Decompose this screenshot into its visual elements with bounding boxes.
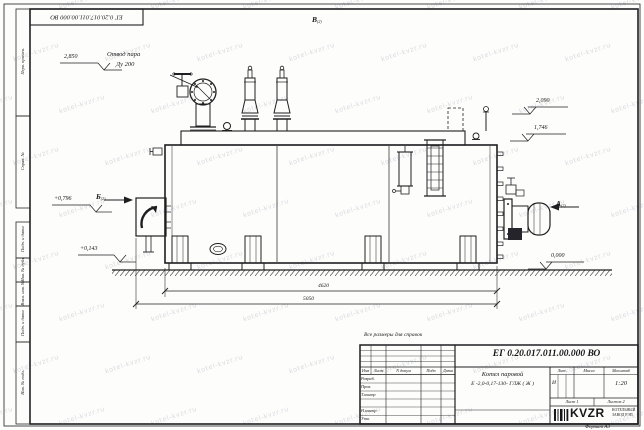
level-2850: 2,850 — [64, 54, 78, 60]
org-name-line2: ЗАВОД РЭП — [612, 414, 633, 418]
boiler-body — [165, 131, 497, 263]
margin-label-inv-podl: Инв. № подл. — [21, 342, 26, 422]
sheet-cell: Лист 1 — [550, 400, 594, 404]
view-label-a: А(2) — [556, 194, 566, 210]
col-izm: Изм — [360, 369, 371, 373]
dim-5050: 5050 — [303, 297, 314, 303]
level-1746: 1,746 — [534, 125, 548, 131]
lit-label: Лит. — [550, 369, 574, 373]
margin-label-perv-primen: Перв. примен. — [21, 21, 26, 101]
top-right-fittings — [448, 107, 489, 140]
support-feet — [169, 236, 479, 270]
col-list: Лист — [371, 369, 386, 373]
level-0143: +0,143 — [80, 246, 98, 252]
format-label: Формат А3 — [585, 425, 610, 430]
left-wall-fitting — [150, 148, 162, 155]
col-data: Дата — [441, 369, 455, 373]
steam-valve — [173, 73, 216, 130]
margin-label-sprav-no: Справ. № — [21, 121, 26, 201]
product-name-line2: Е -2,0-0,17-130- ГЛЖ ( Ж ) — [456, 382, 549, 388]
reference-note: Все размеры для справок — [364, 333, 422, 339]
safety-valves — [241, 66, 291, 131]
role-nkontr: Н.контр — [361, 409, 377, 413]
ground-line — [112, 270, 612, 276]
burner-assembly — [497, 152, 550, 259]
lifting-eye — [222, 123, 232, 131]
view-sheet-ref-b: (2) — [101, 196, 106, 201]
role-utv: Утв. — [361, 417, 370, 421]
level-0000: 0,000 — [551, 253, 565, 259]
massa-label: Масса — [574, 369, 604, 373]
sheets-cell: Листов 2 — [594, 400, 638, 404]
drawing-sheet: kotel-kvzr.rukotel-kvzr.rukotel-kvzr.ruk… — [0, 0, 644, 430]
view-label-b: Б(2) — [96, 187, 105, 203]
view-sheet-ref-a: (2) — [561, 203, 566, 208]
dim-4620: 4620 — [318, 284, 329, 290]
titleblock-doc-number: ЕГ 0.20.017.011.00.000 ВО — [455, 350, 638, 360]
role-tkontr: Т.контр — [361, 393, 376, 397]
level-2090: 2,090 — [536, 98, 550, 104]
level-0796: +0,796 — [54, 196, 72, 202]
water-level-gauges — [393, 140, 447, 196]
scale-value: 1:20 — [604, 381, 638, 388]
view-label-v: В(2) — [312, 10, 322, 26]
logo-barcode — [554, 409, 568, 421]
org-logo-text: KVZR — [570, 407, 605, 419]
role-prov: Пров. — [361, 385, 371, 389]
col-podp: Подп — [421, 369, 441, 373]
col-ndocum: N докум — [386, 369, 421, 373]
corner-stamp-number: ЕГ 0.20.017.011.00.000 ВО — [30, 13, 143, 20]
lit-value: И — [550, 381, 558, 387]
steam-callout-line1: Отвод пара — [107, 52, 140, 59]
masshtab-label: Масштаб — [604, 369, 638, 373]
drawing-linework — [0, 0, 644, 430]
view-sheet-ref-v: (2) — [317, 19, 322, 24]
sheet-frame — [4, 4, 640, 426]
product-name-line1: Котел паровой — [456, 372, 549, 379]
steam-callout-line2: Ду 200 — [116, 62, 134, 69]
role-razrab: Разраб. — [361, 377, 375, 381]
